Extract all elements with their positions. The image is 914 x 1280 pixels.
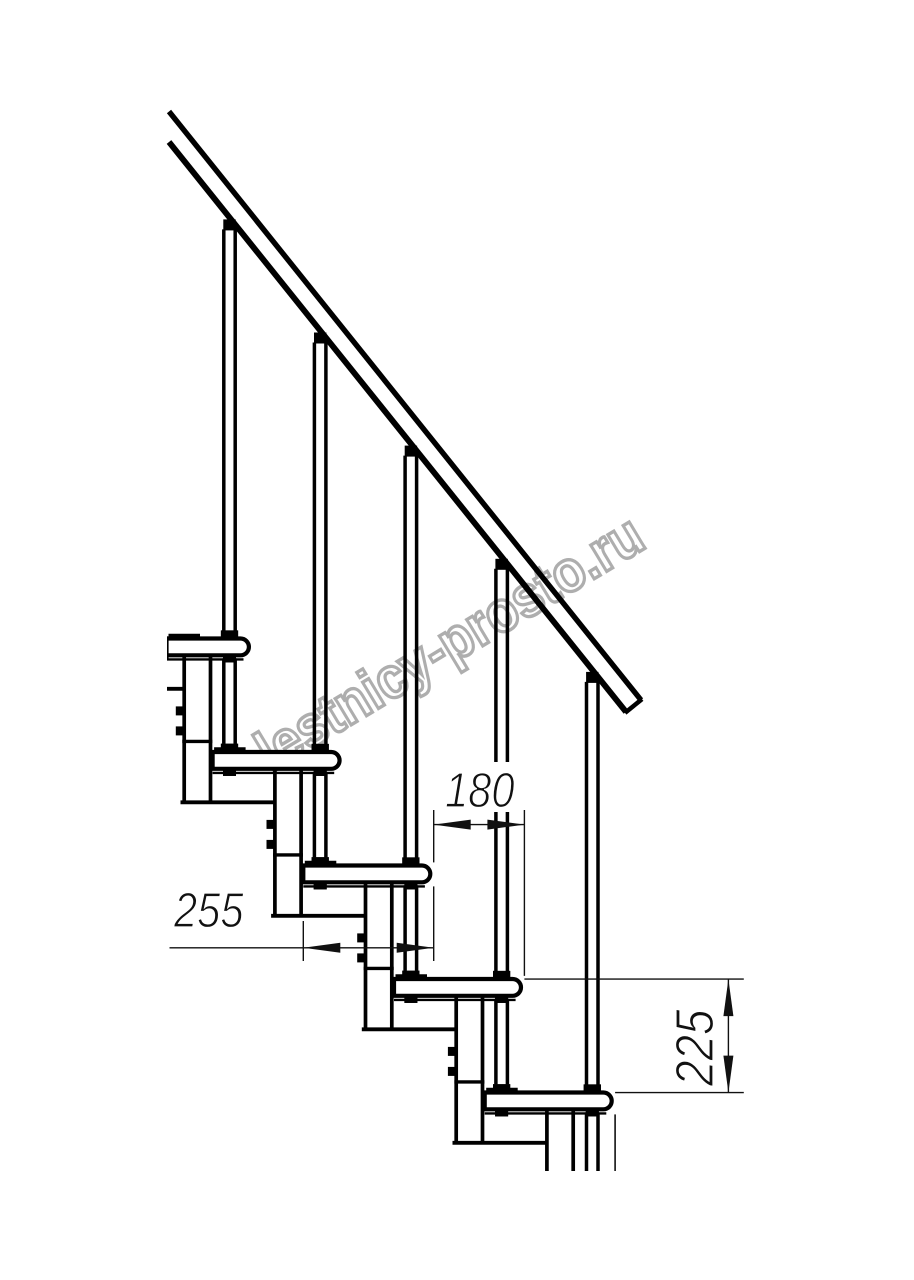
svg-text:225: 225 (665, 1009, 725, 1087)
svg-text:255: 255 (173, 883, 244, 938)
svg-text:180: 180 (445, 763, 514, 818)
